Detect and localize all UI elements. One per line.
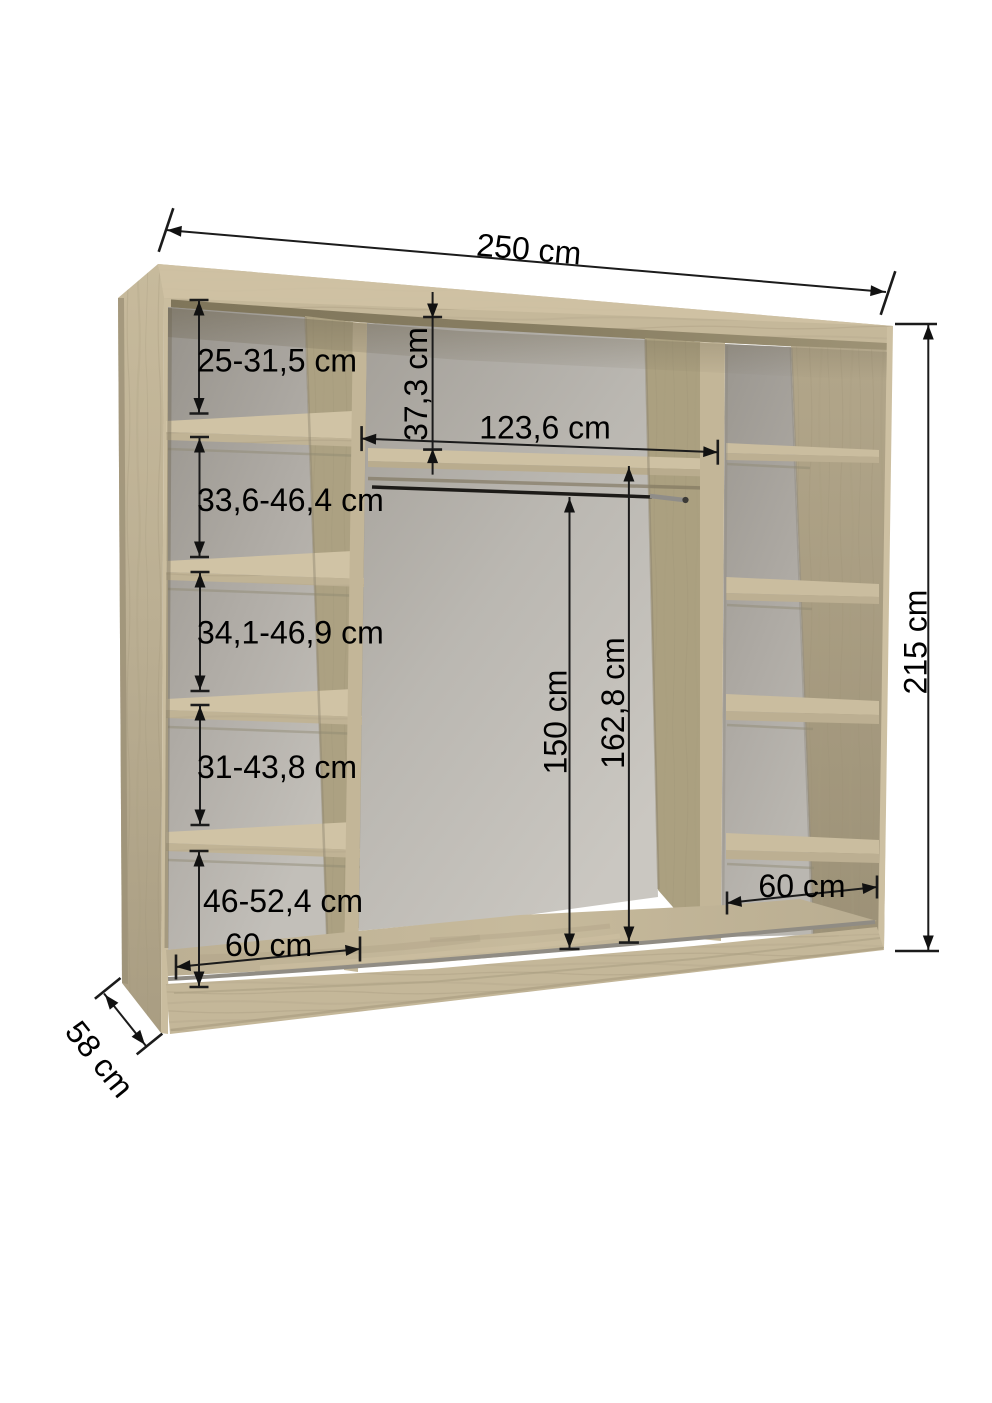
svg-text:37,3 cm: 37,3 cm <box>398 327 434 441</box>
svg-text:123,6 cm: 123,6 cm <box>479 410 611 446</box>
svg-text:33,6-46,4 cm: 33,6-46,4 cm <box>197 482 384 518</box>
svg-text:46-52,4 cm: 46-52,4 cm <box>203 883 363 919</box>
svg-text:150 cm: 150 cm <box>538 670 574 775</box>
svg-text:60 cm: 60 cm <box>225 927 312 963</box>
svg-text:215 cm: 215 cm <box>898 590 934 695</box>
svg-text:25-31,5 cm: 25-31,5 cm <box>197 343 357 379</box>
svg-text:60 cm: 60 cm <box>758 868 845 904</box>
svg-text:162,8 cm: 162,8 cm <box>595 637 631 769</box>
svg-text:31-43,8 cm: 31-43,8 cm <box>197 749 357 785</box>
svg-text:34,1-46,9 cm: 34,1-46,9 cm <box>197 615 384 651</box>
